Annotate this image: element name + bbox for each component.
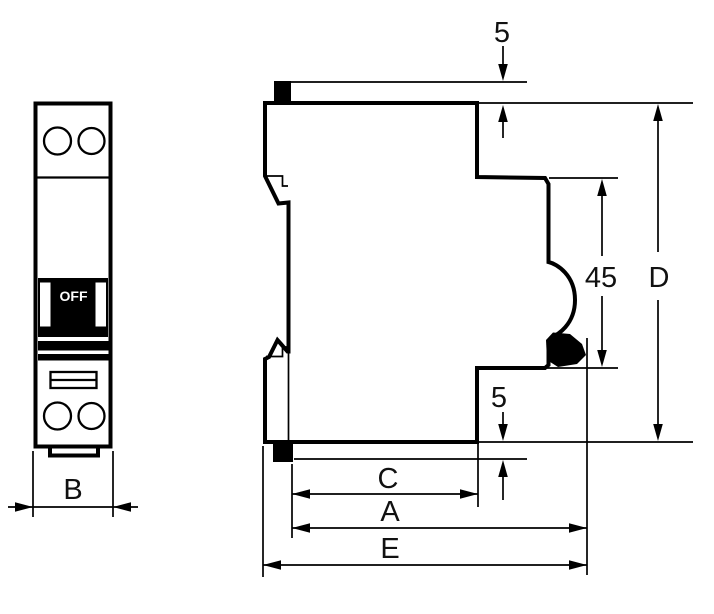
arrow-5bot-down	[498, 424, 508, 441]
front-din-clip-tab	[50, 448, 98, 456]
arrow-5bot-up	[498, 460, 508, 477]
arrow-b-right	[113, 502, 131, 512]
dim-label-c: C	[378, 463, 399, 495]
arrow-a-right	[569, 523, 587, 533]
arrow-45-up	[597, 179, 607, 196]
front-view: OFF	[35, 104, 111, 456]
arrow-d-down	[653, 424, 663, 441]
side-view	[265, 81, 586, 462]
side-top-tab	[274, 81, 291, 103]
dim-label-d: D	[649, 262, 670, 294]
dimension-e: E	[263, 446, 587, 577]
arrow-45-down	[597, 350, 607, 367]
side-body-outline	[265, 103, 575, 442]
dim-label-5-bottom: 5	[491, 382, 507, 414]
toggle-off-label: OFF	[60, 288, 88, 304]
arrow-e-left	[263, 560, 281, 570]
dim-label-a: A	[380, 496, 400, 528]
toggle-slot-right	[96, 283, 107, 327]
dim-label-5-top: 5	[494, 17, 510, 49]
arrow-a-left	[292, 523, 310, 533]
dimension-b: B	[8, 451, 138, 517]
side-bottom-tab	[273, 443, 293, 462]
arrow-c-right	[460, 489, 478, 499]
arrow-e-right	[569, 560, 587, 570]
circuit-breaker-dimension-drawing: OFF B	[0, 0, 714, 614]
arrow-d-up	[653, 104, 663, 121]
dim-label-b: B	[63, 474, 82, 506]
dim-label-e: E	[380, 533, 399, 565]
arrow-b-left	[15, 502, 33, 512]
arrow-5top-down	[498, 64, 508, 81]
front-stripe-2	[38, 354, 109, 361]
drawing-canvas: OFF B	[0, 0, 714, 614]
arrow-c-left	[292, 489, 310, 499]
arrow-5top-up	[498, 105, 508, 122]
toggle-slot-left	[40, 283, 51, 327]
front-stripe-1	[38, 341, 109, 351]
dim-label-45: 45	[585, 262, 617, 294]
front-body-outline	[36, 104, 111, 447]
din-rail-clip-pawl	[546, 333, 586, 368]
